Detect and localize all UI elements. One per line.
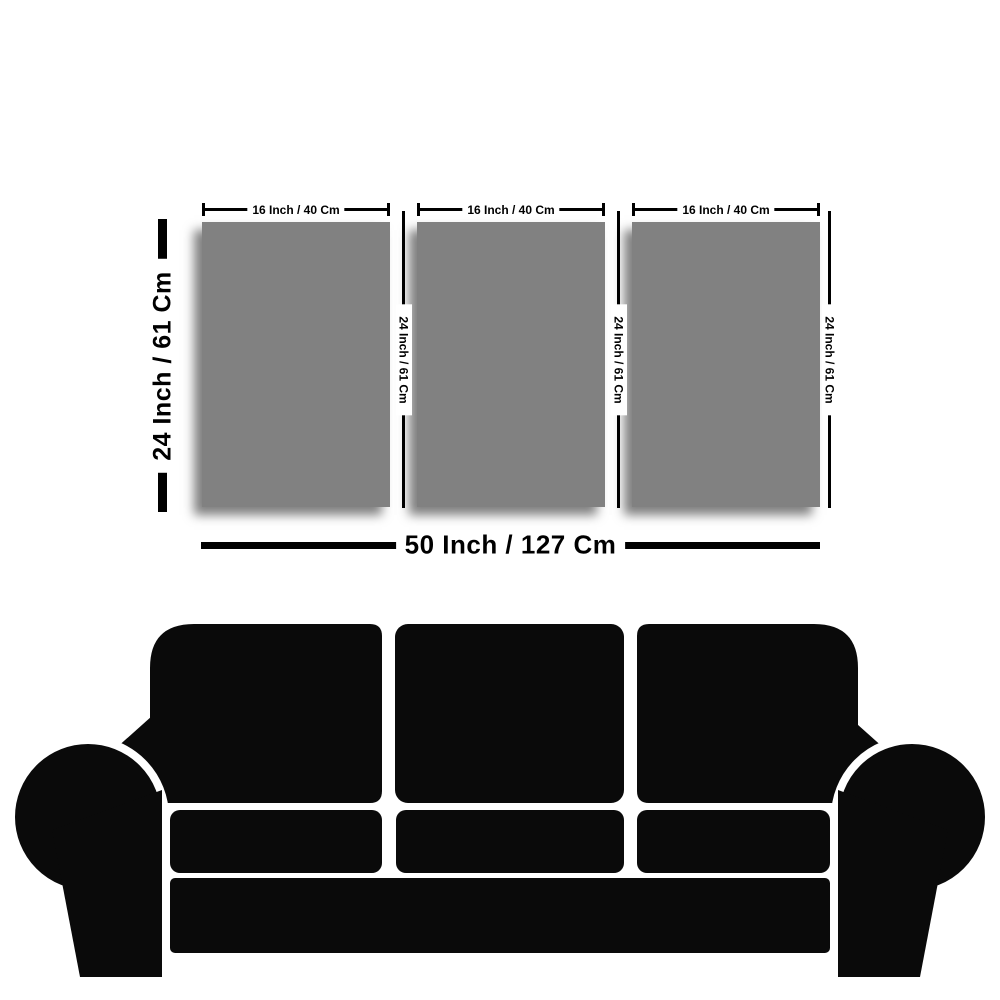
sofa-silhouette xyxy=(0,0,1000,1000)
sofa-seat-cushion-center xyxy=(396,810,624,873)
sofa-seat-cushion-right xyxy=(637,810,830,873)
sofa-back-cushion-left xyxy=(150,624,382,803)
sofa-back-cushion-center xyxy=(395,624,624,803)
sofa-base xyxy=(170,878,830,953)
product-size-diagram: 16 Inch / 40 Cm 16 Inch / 40 Cm 16 Inch … xyxy=(0,0,1000,1000)
sofa-back-cushion-right xyxy=(637,624,858,803)
sofa-seat-cushion-left xyxy=(170,810,382,873)
